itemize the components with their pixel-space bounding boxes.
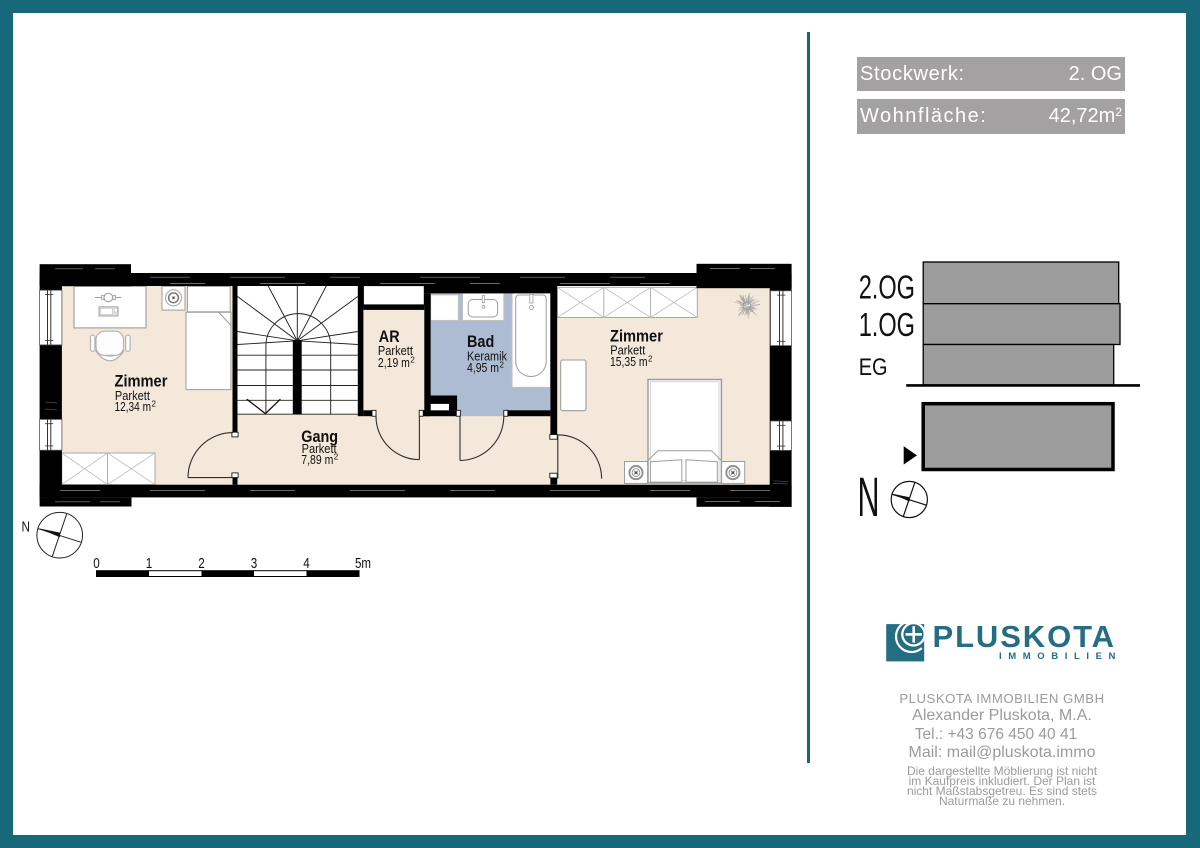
svg-text:3: 3 — [251, 555, 258, 572]
svg-text:2,19 m: 2,19 m — [378, 356, 410, 370]
svg-text:2.OG: 2.OG — [859, 269, 915, 306]
svg-text:N: N — [22, 519, 31, 536]
svg-text:2: 2 — [152, 400, 157, 409]
svg-text:Bad: Bad — [467, 332, 494, 351]
svg-text:7,89 m: 7,89 m — [301, 453, 333, 467]
svg-text:N: N — [858, 465, 880, 528]
svg-text:0: 0 — [93, 555, 100, 572]
svg-text:12,34 m: 12,34 m — [115, 400, 152, 414]
svg-text:2: 2 — [648, 354, 653, 363]
svg-text:2: 2 — [334, 453, 339, 462]
svg-text:EG: EG — [859, 354, 888, 381]
svg-text:15,35 m: 15,35 m — [610, 355, 648, 369]
svg-text:4: 4 — [303, 555, 310, 572]
svg-text:5m: 5m — [355, 555, 371, 572]
svg-text:2: 2 — [410, 355, 415, 364]
svg-text:1.OG: 1.OG — [859, 306, 915, 343]
svg-text:Zimmer: Zimmer — [115, 372, 168, 391]
svg-text:2: 2 — [198, 555, 205, 572]
svg-text:2: 2 — [500, 361, 505, 370]
svg-text:Zimmer: Zimmer — [610, 326, 663, 345]
svg-text:1: 1 — [146, 555, 153, 572]
svg-text:4,95 m: 4,95 m — [467, 361, 499, 375]
